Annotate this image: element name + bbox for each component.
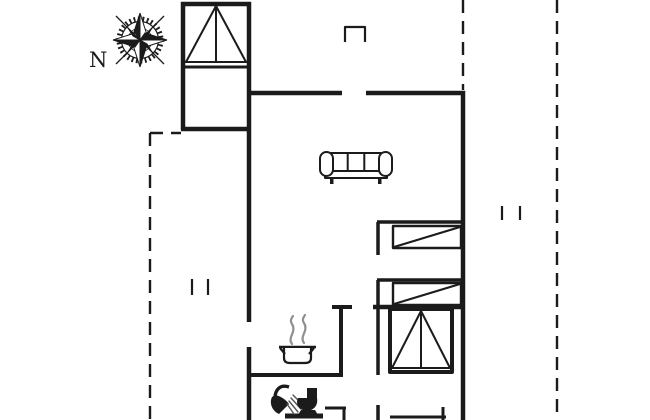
bunk-bed-diagonal — [392, 311, 421, 368]
steam-icon — [291, 316, 294, 344]
floor-plan-drawing: N — [0, 0, 650, 420]
single-bed-symbol-lower — [393, 283, 461, 305]
toilet-base — [298, 410, 318, 415]
compass-rose-icon — [113, 13, 167, 67]
toilet-bowl — [297, 398, 317, 410]
shower-head — [271, 395, 289, 414]
bunk-bed-symbol-bottom — [390, 309, 452, 372]
sofa-arm-left — [320, 152, 333, 176]
single-bed-diagonal — [394, 284, 460, 304]
toilet-icon — [297, 388, 318, 415]
opening-tick-marks — [192, 206, 520, 295]
entrance-canopy-symbol — [345, 27, 365, 42]
sofa-frame — [325, 171, 387, 178]
single-bed-symbol-upper — [393, 226, 461, 248]
bunk-bed-diagonal — [421, 311, 450, 368]
walls — [181, 2, 465, 420]
pot-body — [284, 348, 311, 363]
sofa-icon — [320, 152, 392, 184]
single-bed-diagonal — [394, 227, 460, 247]
sofa-arm-right — [379, 152, 392, 176]
steam-icon — [303, 315, 306, 343]
bathroom-icons — [271, 386, 318, 415]
cooking-pot-with-steam-icon — [279, 315, 316, 363]
sofa-foot — [330, 178, 334, 184]
floor-plan: N — [0, 0, 650, 420]
sofa-foot — [378, 178, 382, 184]
bunk-bed-diagonal — [216, 6, 246, 62]
shower-spray — [289, 401, 298, 412]
bunk-bed-symbol-top — [185, 6, 247, 62]
bunk-bed-diagonal — [186, 6, 216, 62]
sofa-cushions — [331, 153, 381, 171]
compass-north-label: N — [89, 48, 107, 72]
